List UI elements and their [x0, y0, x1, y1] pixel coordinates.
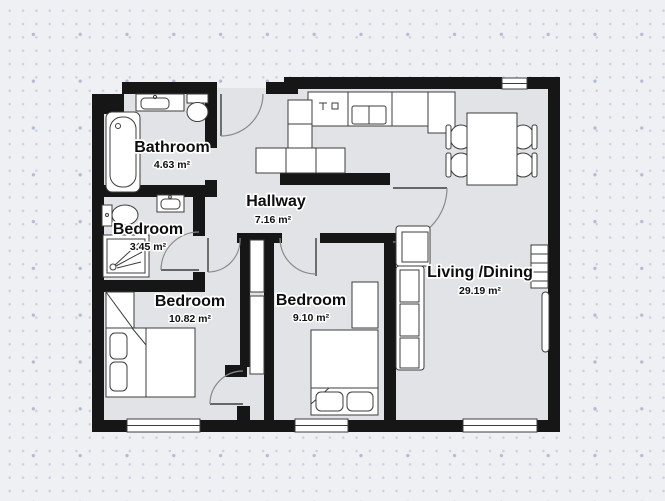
label-bedroom-ensuite: Bedroom: [113, 221, 183, 238]
bathroom-toilet-icon: [187, 94, 208, 122]
area-bathroom: 4.63 m²: [154, 159, 191, 171]
wall-right: [548, 77, 560, 432]
label-living-dining: Living /Dining: [427, 264, 533, 281]
window-bedroom-middle: [295, 419, 348, 432]
label-hallway: Hallway: [246, 193, 306, 210]
label-bathroom: Bathroom: [134, 139, 210, 156]
wall-closet-jog: [225, 365, 247, 377]
wall-bathroom-right-lower: [205, 180, 217, 197]
window-kitchen-top: [502, 78, 527, 89]
wall-ensuite-bottom: [104, 280, 205, 292]
armchair: [396, 226, 430, 266]
closets: [250, 240, 264, 374]
wall-top-left-a: [122, 82, 217, 94]
wall-ensuite-right-upper: [193, 197, 205, 236]
wall-top-right-a: [290, 77, 502, 89]
closet-lower: [250, 296, 264, 374]
area-bedroom-left: 10.82 m²: [169, 313, 212, 325]
dining-table: [467, 113, 517, 185]
kitchen-counter-top: [308, 92, 428, 126]
label-bedroom-middle: Bedroom: [276, 292, 346, 309]
bed-middle: [311, 330, 378, 415]
wardrobe-middle: [352, 282, 378, 328]
area-living-dining: 29.19 m²: [459, 285, 502, 297]
kitchen-counter-left: [288, 100, 312, 148]
bed-left: [106, 328, 195, 397]
window-living: [463, 419, 537, 432]
window-bedroom-left: [127, 419, 200, 432]
wall-bedroom-middle-north: [320, 233, 398, 243]
area-hallway: 7.16 m²: [255, 214, 292, 226]
area-bedroom-middle: 9.10 m²: [293, 312, 330, 324]
label-bedroom-left: Bedroom: [155, 293, 225, 310]
wall-bottom-a: [92, 420, 127, 432]
wall-left: [92, 108, 104, 432]
bathroom-sink-icon: [136, 94, 184, 111]
closet-upper: [250, 240, 264, 292]
wardrobe-left: [106, 292, 134, 330]
sofa: [396, 266, 424, 370]
radiator: [542, 292, 549, 352]
shelf-unit: [531, 245, 548, 288]
wall-closet-west-upper: [240, 243, 250, 367]
floorplan-page: Bathroom 4.63 m² Bedroom 3.45 m² Hallway…: [0, 0, 665, 501]
floorplan-drawing: Bathroom 4.63 m² Bedroom 3.45 m² Hallway…: [0, 0, 665, 501]
wall-closet-west-lower: [237, 406, 250, 422]
wall-hallway-living: [280, 173, 390, 185]
wall-bottom-c: [348, 420, 463, 432]
kitchen-peninsula: [256, 148, 345, 173]
ensuite-sink-icon: [157, 195, 184, 212]
wall-bedroom-middle-east: [384, 243, 396, 420]
area-bedroom-ensuite: 3.45 m²: [130, 241, 167, 253]
wall-bedroom-middle-west: [264, 243, 274, 420]
wall-bottom-d: [537, 420, 560, 432]
